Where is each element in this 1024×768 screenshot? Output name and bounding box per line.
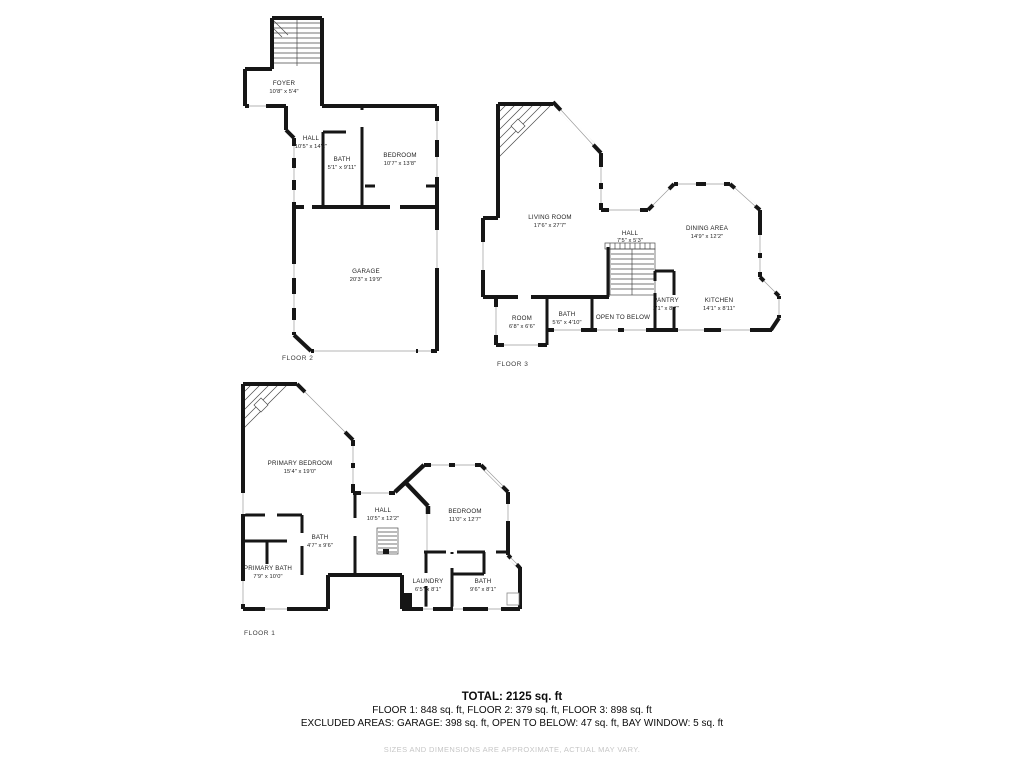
summary-disclaimer: SIZES AND DIMENSIONS ARE APPROXIMATE, AC… (0, 745, 1024, 754)
floor1-laundry-name: LAUNDRY (413, 578, 444, 585)
floor3-room-labels: LIVING ROOM 17'6" x 27'7" HALL 7'5" x 5'… (509, 214, 735, 330)
floor3-hall-dims: 7'5" x 5'3" (617, 238, 643, 244)
floor-3-plan: LIVING ROOM 17'6" x 27'7" HALL 7'5" x 5'… (478, 95, 788, 355)
floor2-bath-name: BATH (334, 156, 351, 163)
floor1-laundry-dims: 6'5" x 8'1" (415, 587, 441, 593)
floor2-caption: FLOOR 2 (282, 355, 313, 362)
floor1-bath2-name: BATH (475, 578, 492, 585)
floorplan-page: FOYER 10'8" x 5'4" HALL 10'5" x 14'2" BA… (0, 0, 1024, 768)
floor3-living-dims: 17'6" x 27'7" (534, 223, 567, 229)
floor1-bath-dims: 4'7" x 9'6" (307, 543, 333, 549)
summary-floors: FLOOR 1: 848 sq. ft, FLOOR 2: 379 sq. ft… (0, 705, 1024, 717)
floor3-dining-name: DINING AREA (686, 225, 729, 232)
floor3-room-name: ROOM (512, 315, 532, 322)
floor1-stairs (377, 528, 398, 554)
floor1-bath-name: BATH (312, 534, 329, 541)
floor3-living-name: LIVING ROOM (528, 214, 571, 221)
floor1-primary-bedroom-name: PRIMARY BEDROOM (268, 460, 333, 467)
floor3-kitchen-name: KITCHEN (705, 297, 734, 304)
summary-total: TOTAL: 2125 sq. ft (0, 691, 1024, 704)
floor3-pantry-name: PANTRY (653, 297, 679, 304)
floor2-foyer-name: FOYER (273, 80, 296, 87)
floor2-bath-dims: 5'1" x 9'11" (328, 165, 357, 171)
floor1-walls (243, 384, 520, 609)
floor-2-plan: FOYER 10'8" x 5'4" HALL 10'5" x 14'2" BA… (232, 10, 457, 355)
floor1-hall-name: HALL (375, 507, 392, 514)
floor2-foyer-dims: 10'8" x 5'4" (269, 89, 298, 95)
floor2-garage-dims: 20'3" x 19'9" (350, 277, 383, 283)
floor2-hall-dims: 10'5" x 14'2" (295, 144, 328, 150)
floor1-caption: FLOOR 1 (244, 630, 275, 637)
floor1-bedroom-dims: 11'0" x 12'7" (449, 517, 481, 523)
floor2-bedroom-dims: 10'7" x 13'8" (384, 161, 417, 167)
floor3-stairs (605, 243, 655, 295)
floor2-room-labels: FOYER 10'8" x 5'4" HALL 10'5" x 14'2" BA… (269, 80, 416, 283)
area-summary: TOTAL: 2125 sq. ft FLOOR 1: 848 sq. ft, … (0, 691, 1024, 730)
floor2-garage-name: GARAGE (352, 268, 380, 275)
floor3-caption: FLOOR 3 (497, 361, 528, 368)
floor1-primary-bath-name: PRIMARY BATH (244, 565, 292, 572)
floor1-hall-dims: 10'5" x 12'2" (367, 516, 400, 522)
floor3-room-dims: 6'8" x 6'6" (509, 324, 535, 330)
floor1-primary-bath-dims: 7'9" x 10'0" (253, 574, 282, 580)
floor1-primary-bedroom-dims: 15'4" x 19'0" (284, 469, 317, 475)
floor3-kitchen-dims: 14'1" x 8'11" (703, 306, 735, 312)
summary-excluded: EXCLUDED AREAS: GARAGE: 398 sq. ft, OPEN… (0, 718, 1024, 730)
floor2-walls (245, 18, 437, 351)
floor2-stairs (273, 19, 321, 66)
floor3-bath-dims: 5'6" x 4'10" (552, 320, 581, 326)
floor-1-plan: PRIMARY BEDROOM 15'4" x 19'0" HALL 10'5"… (235, 378, 535, 643)
floor1-bedroom-name: BEDROOM (448, 508, 481, 515)
floor3-bath-name: BATH (559, 311, 576, 318)
floor1-bath2-dims: 9'6" x 8'1" (470, 587, 496, 593)
floor1-corner-hatch (243, 384, 288, 429)
floor3-pantry-dims: 2'1" x 8'7" (653, 306, 679, 312)
floor3-open-below-label: OPEN TO BELOW (596, 314, 650, 321)
floor2-hall-name: HALL (303, 135, 320, 142)
floor2-bedroom-name: BEDROOM (383, 152, 416, 159)
floor3-hall-name: HALL (622, 230, 639, 237)
floor3-dining-dims: 14'9" x 12'2" (691, 234, 724, 240)
floor3-corner-hatch (498, 104, 552, 158)
